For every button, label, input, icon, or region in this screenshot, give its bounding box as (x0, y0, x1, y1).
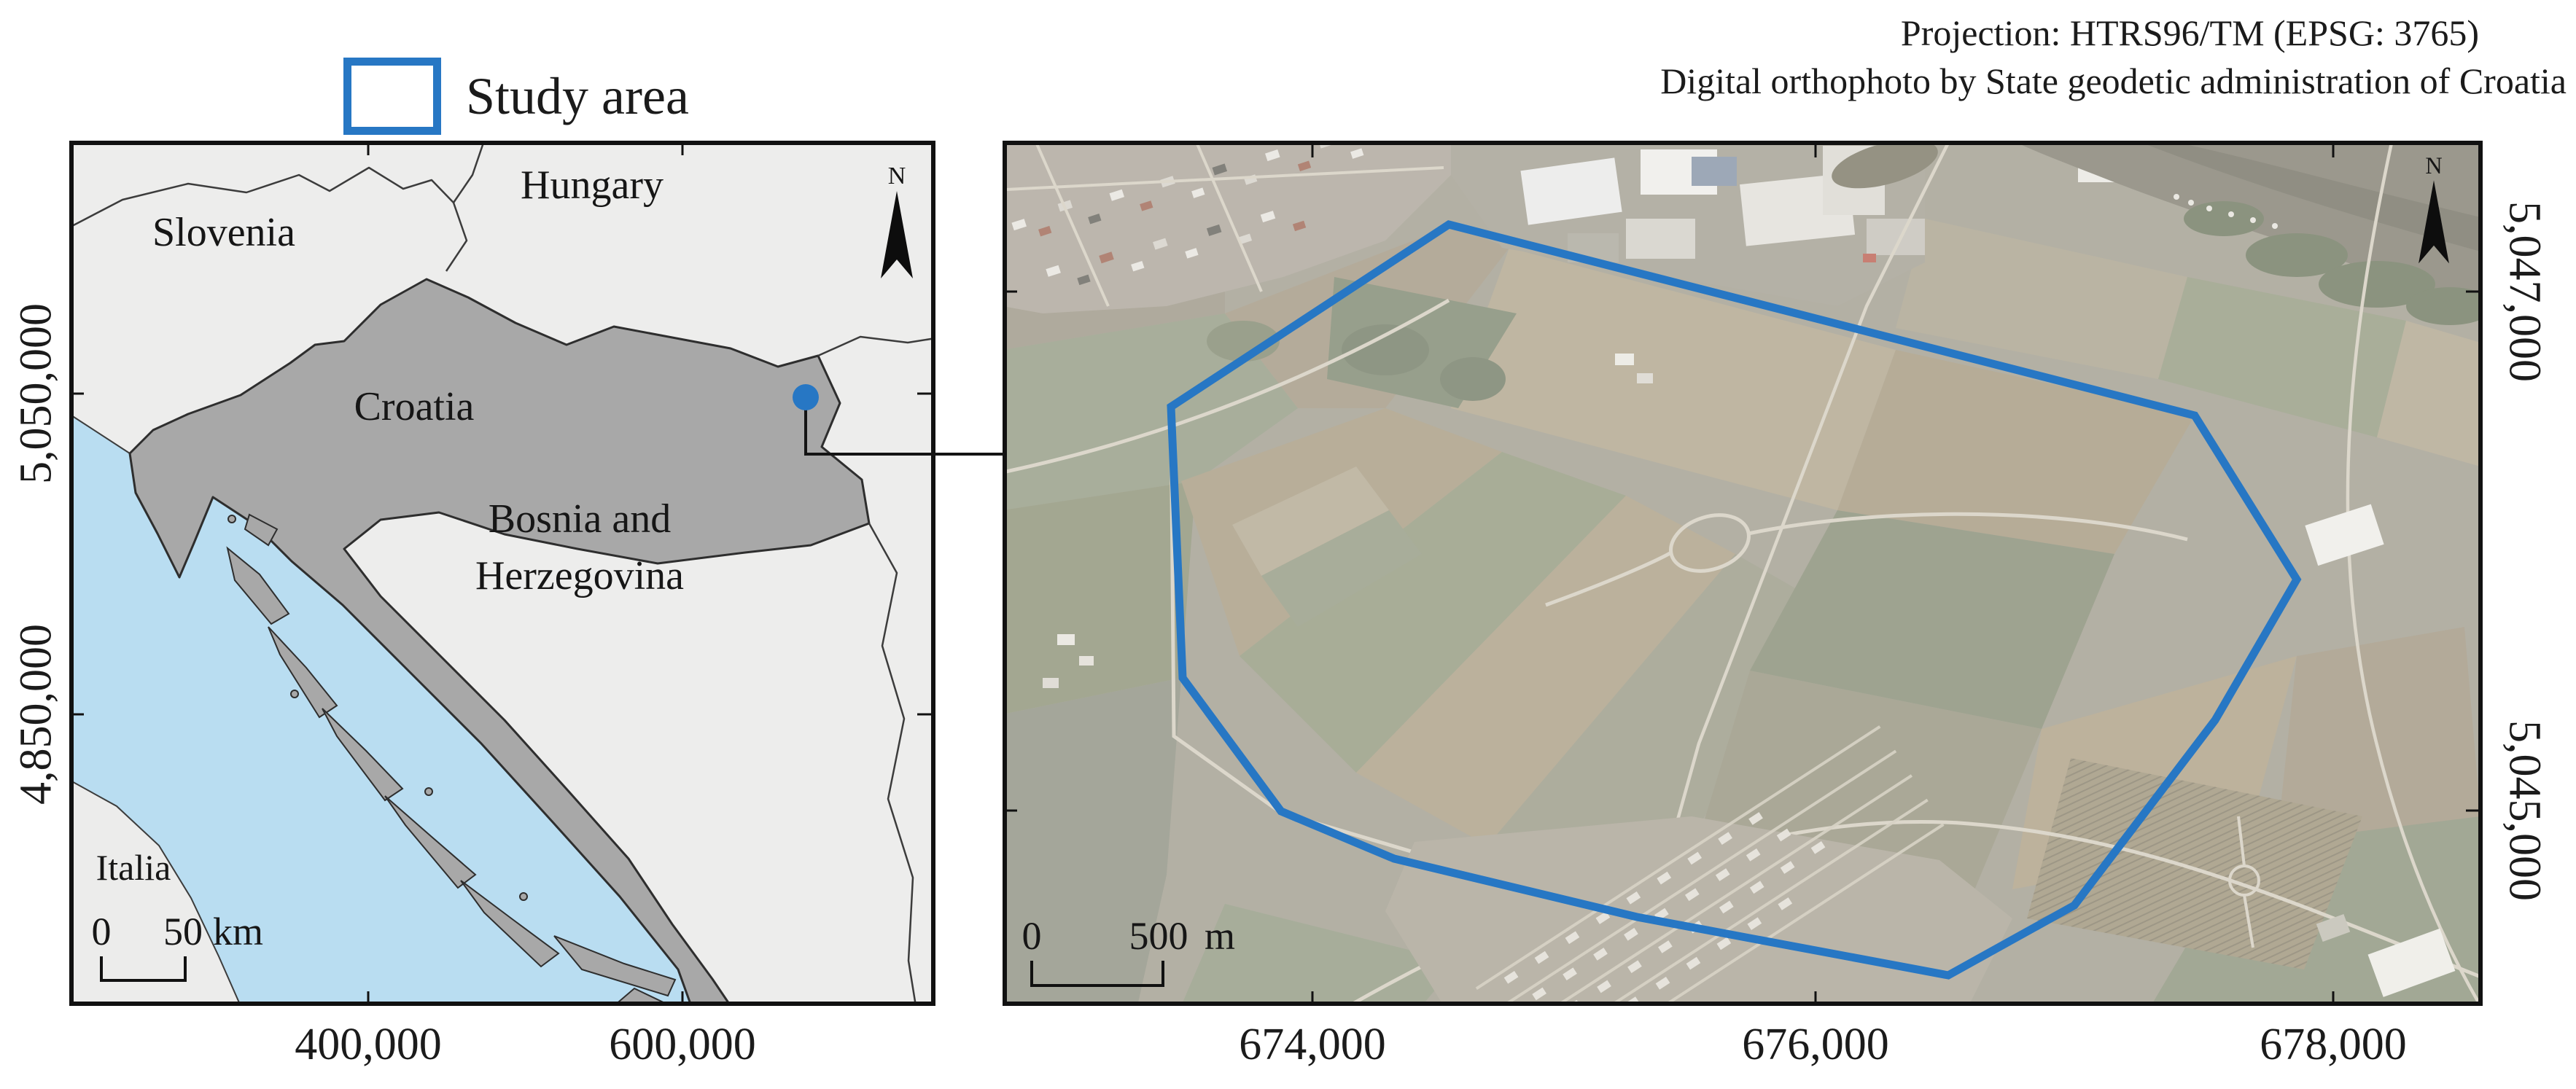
scalebar-value: 50 (163, 910, 203, 953)
ortho-map: 0 500 m N (1003, 141, 2483, 1006)
orthophoto-credit: Digital orthophoto by State geodetic adm… (1660, 60, 2567, 102)
ortho-haze (1003, 141, 2483, 1006)
label-slovenia: Slovenia (152, 210, 295, 255)
label-italia: Italia (96, 847, 171, 888)
label-hungary: Hungary (521, 163, 664, 208)
label-bosnia-line1: Bosnia and (489, 496, 671, 542)
scalebar-unit: m (1205, 914, 1235, 958)
north-letter: N (888, 163, 906, 190)
north-letter: N (2425, 152, 2442, 179)
legend: Study area (343, 58, 689, 135)
x-tick-label: 400,000 (295, 1019, 442, 1071)
overview-map: Slovenia Hungary Croatia Bosnia and Herz… (69, 141, 935, 1006)
scalebar-value: 500 (1129, 914, 1188, 958)
y-tick-label: 5,050,000 (11, 303, 63, 484)
study-area-swatch-icon (343, 58, 441, 135)
leader-line-horizontal (804, 453, 1004, 456)
label-croatia: Croatia (354, 384, 475, 429)
x-tick-label: 678,000 (2260, 1019, 2407, 1071)
projection-credit: Projection: HTRS96/TM (EPSG: 3765) (1901, 12, 2479, 54)
x-tick-label: 676,000 (1742, 1019, 1889, 1071)
study-location-dot (793, 384, 819, 410)
label-bosnia-line2: Herzegovina (475, 553, 684, 598)
y-tick-label: 4,850,000 (11, 624, 63, 805)
y-tick-label: 5,045,000 (2499, 720, 2550, 901)
scalebar-zero: 0 (92, 910, 112, 953)
scalebar-unit: km (213, 910, 263, 953)
study-area-figure: Study area Projection: HTRS96/TM (EPSG: … (0, 0, 2576, 1089)
legend-label: Study area (466, 58, 689, 135)
scalebar-zero: 0 (1022, 914, 1042, 958)
x-tick-label: 600,000 (609, 1019, 756, 1071)
x-tick-label: 674,000 (1239, 1019, 1386, 1071)
y-tick-label: 5,047,000 (2499, 201, 2550, 382)
